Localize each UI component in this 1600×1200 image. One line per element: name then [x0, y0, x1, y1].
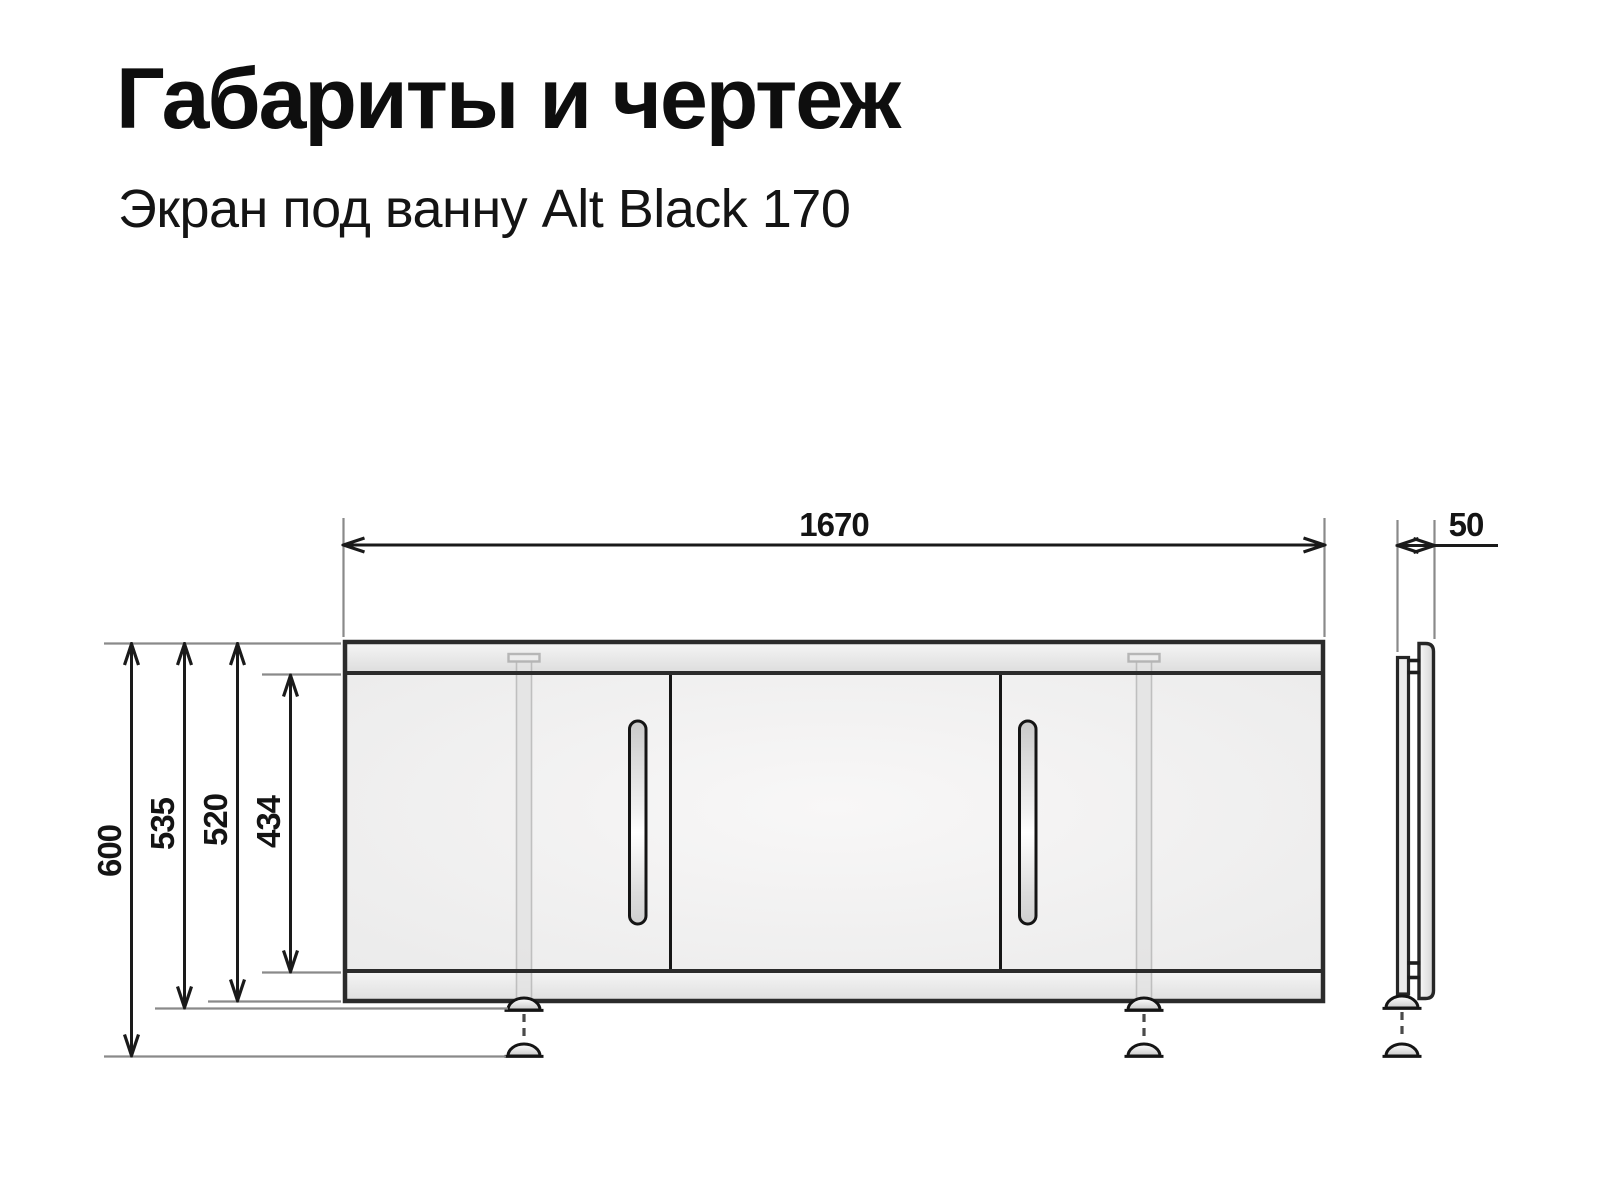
- right-door-handle: [1020, 721, 1037, 924]
- left-door-handle: [630, 721, 647, 924]
- right-leg-stem: [1137, 660, 1152, 999]
- right-foot-lower-dome: [1128, 1044, 1160, 1056]
- page: Габариты и чертеж Экран под ванну Alt Bl…: [0, 0, 1600, 1200]
- top-rail: [343, 640, 1325, 673]
- side-foot-lower-dome: [1386, 1044, 1418, 1056]
- side-leg-profile: [1398, 658, 1409, 995]
- right-foot-upper-dome: [1128, 998, 1160, 1010]
- side-leg-foot: [1383, 996, 1422, 1056]
- left-leg-foot: [505, 998, 544, 1056]
- doors-area: [343, 643, 1325, 971]
- technical-drawing: 1670 600 535 520 434: [0, 0, 1600, 1200]
- side-view: [1383, 644, 1434, 1057]
- left-foot-upper-dome: [508, 998, 540, 1010]
- width-dimension-label: 1670: [799, 506, 868, 543]
- right-leg-head: [1129, 654, 1160, 662]
- side-foot-upper-dome: [1386, 996, 1418, 1008]
- height-panel-dimension-label: 520: [197, 794, 234, 846]
- front-view: [343, 640, 1325, 1056]
- bottom-rail: [343, 969, 1325, 1003]
- height-with-feet-dimension-label: 535: [144, 797, 181, 850]
- side-panel-profile: [1419, 644, 1434, 999]
- right-leg-foot: [1125, 998, 1164, 1056]
- height-doors-dimension-label: 434: [250, 794, 287, 848]
- depth-dimension-label: 50: [1449, 506, 1484, 543]
- height-total-dimension-label: 600: [91, 825, 128, 877]
- side-dimension: 50: [1398, 506, 1499, 652]
- left-foot-lower-dome: [508, 1044, 540, 1056]
- left-leg-head: [509, 654, 540, 662]
- left-leg-stem: [517, 660, 532, 999]
